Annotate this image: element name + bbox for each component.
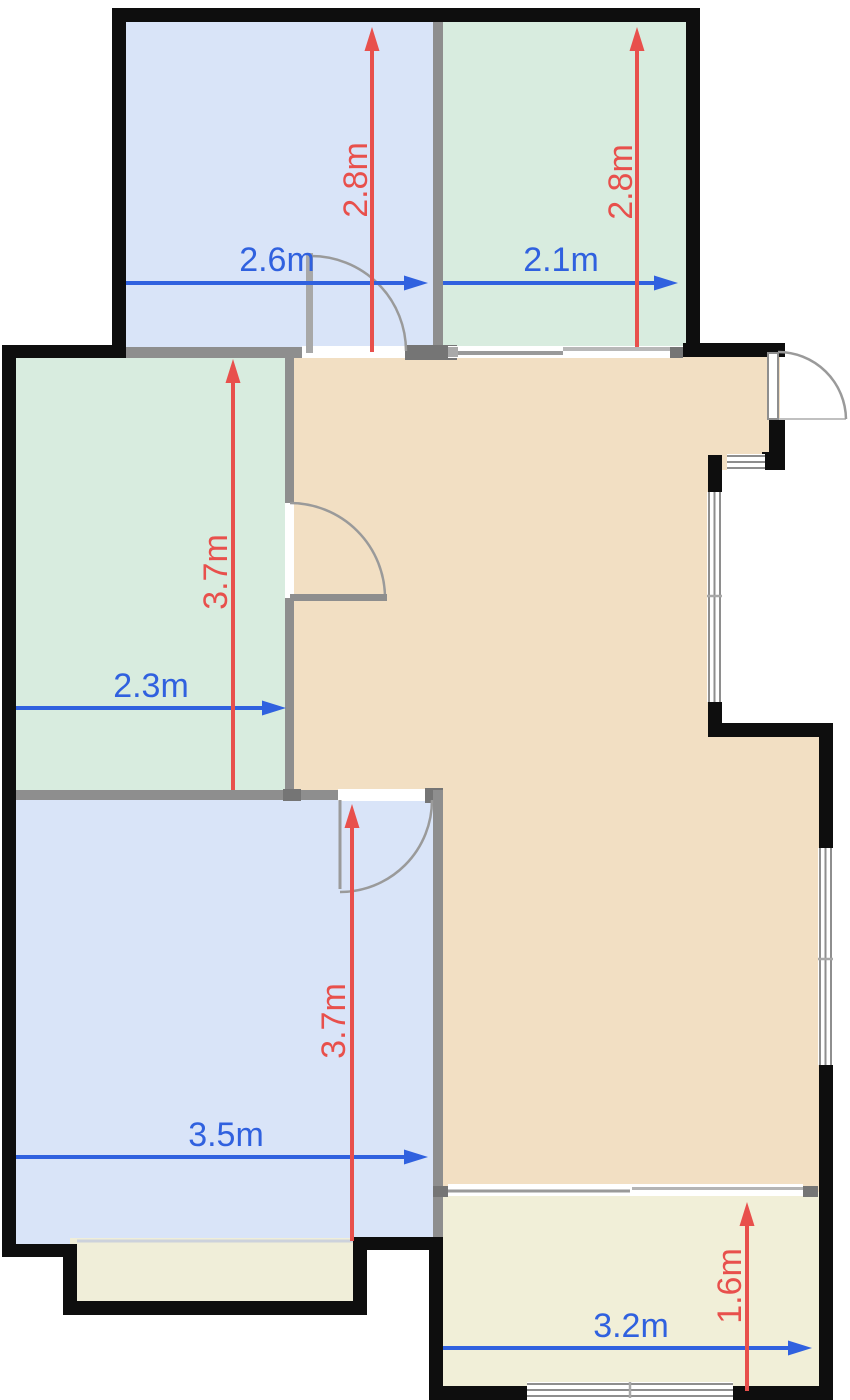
wall-green-hall-upper [285,353,294,503]
wall-right-mid [819,723,833,848]
floor-plan-canvas: 2.6m 2.1m 2.8m 2.8m 2.3m 3.7m [0,0,850,1400]
wall-left [2,345,16,1257]
wall-top-right-vertical [686,8,700,357]
dim-label: 3.2m [593,1307,669,1345]
wall-notch-horizontal [708,723,833,737]
dim-label: 3.7m [197,534,235,610]
room-middle-left [8,350,293,795]
wall-under-top-left-room [126,347,302,358]
dim-label: 2.8m [602,144,640,220]
wall-right-lower [819,1065,833,1400]
dim-label: 2.3m [113,667,189,705]
dim-label: 3.5m [188,1116,264,1154]
dim-label: 2.8m [337,142,375,218]
dim-label: 1.6m [711,1248,749,1324]
window-right-lower-vertical [818,848,833,1065]
window-end-cap [670,347,683,358]
window-end-cap [448,347,458,357]
door-threshold-bottom-left [338,789,433,801]
door-threshold-top-left [302,346,405,358]
wall-window-cap-lower [708,700,722,730]
room-top-right [443,8,693,357]
door-leaf [290,594,387,601]
wall-blue-hall [433,790,443,1237]
wall-window-cap-upper [708,455,722,492]
door-threshold-middle [285,503,294,598]
wall-between-top-rooms [433,10,443,353]
wall-top [112,8,700,22]
window-bottom-horizontal [527,1382,733,1398]
dim-label: 3.7m [315,983,353,1059]
room-balcony [70,1238,360,1308]
window-end-cap [803,1186,818,1197]
window-right-upper-horizontal [727,454,765,470]
floor-plan-page: 2.6m 2.1m 2.8m 2.8m 2.3m 3.7m [0,0,850,1400]
wall-balcony-bottom [63,1301,367,1315]
wall-entry-corner [762,452,785,470]
room-bottom-right [438,1192,828,1398]
wall-bottom-left-segment [429,1386,527,1400]
wall-green-hall-lower [285,598,294,792]
room-bottom-left [8,795,438,1247]
wall-bottom-right-room-left [429,1237,443,1400]
wall-cap [283,789,301,801]
wall-top-left-vertical [112,8,126,353]
wall-left-step [2,345,126,358]
dim-label: 2.1m [523,241,599,279]
dim-label: 2.6m [239,241,315,279]
window-end-cap [433,1186,448,1197]
window-right-upper-vertical [707,492,722,702]
door-leaf [768,353,778,419]
